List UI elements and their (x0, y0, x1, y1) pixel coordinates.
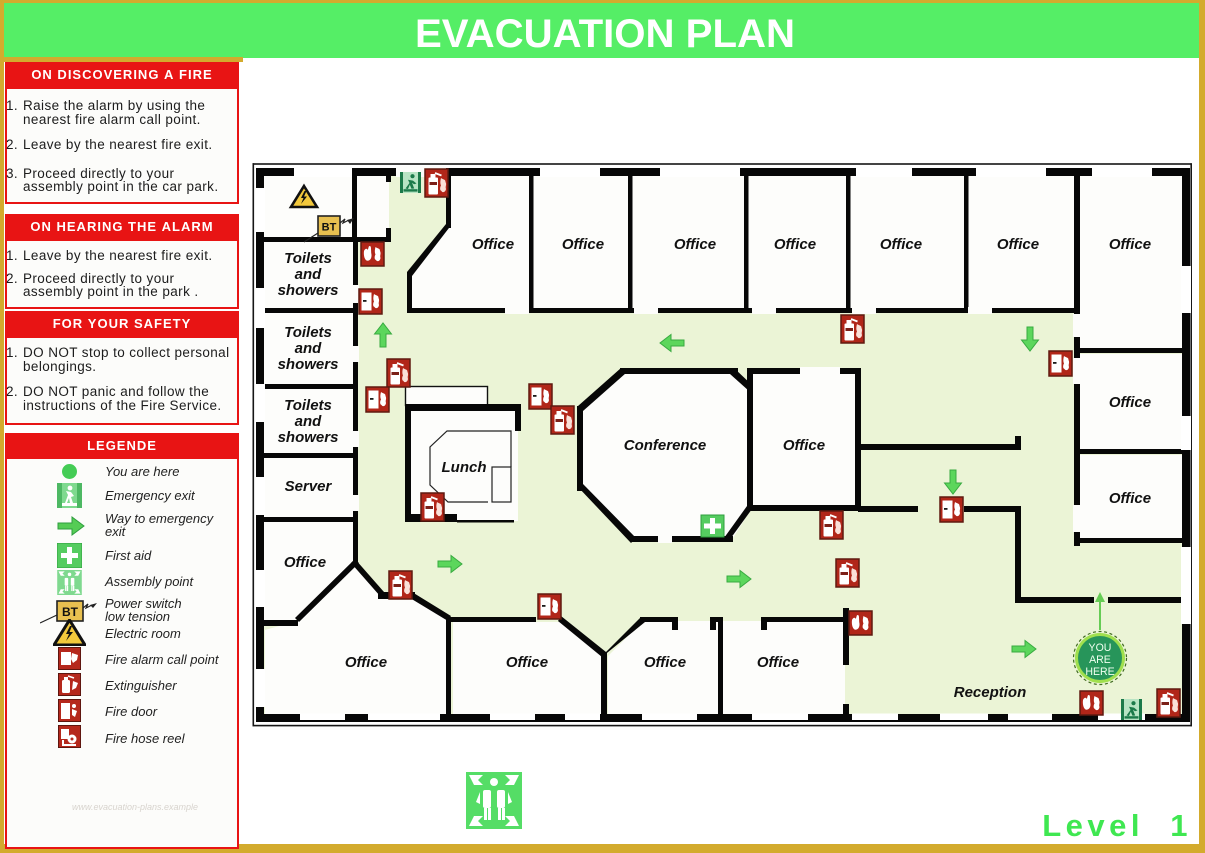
svg-text:Office: Office (774, 236, 816, 253)
svg-text:Toilets: Toilets (284, 397, 332, 414)
svg-text:Office: Office (1109, 236, 1151, 253)
svg-text:and: and (295, 413, 323, 430)
svg-text:Toilets: Toilets (284, 324, 332, 341)
svg-text:ARE: ARE (1089, 654, 1111, 666)
svg-text:Office: Office (1109, 490, 1151, 507)
svg-text:Office: Office (674, 236, 716, 253)
svg-text:Office: Office (1109, 394, 1151, 411)
svg-text:BT: BT (322, 222, 337, 234)
svg-text:Office: Office (345, 654, 387, 671)
svg-text:Office: Office (757, 654, 799, 671)
svg-text:Office: Office (880, 236, 922, 253)
svg-text:Conference: Conference (624, 437, 707, 454)
svg-text:showers: showers (278, 429, 339, 446)
svg-text:Office: Office (284, 554, 326, 571)
svg-text:and: and (295, 266, 323, 283)
svg-text:Office: Office (562, 236, 604, 253)
svg-text:Office: Office (506, 654, 548, 671)
svg-text:Server: Server (285, 478, 333, 495)
svg-text:HERE: HERE (1085, 666, 1114, 678)
svg-text:Office: Office (472, 236, 514, 253)
svg-text:Office: Office (997, 236, 1039, 253)
svg-text:Reception: Reception (954, 684, 1027, 701)
svg-text:BT: BT (62, 605, 79, 619)
svg-text:Office: Office (783, 437, 825, 454)
svg-text:Toilets: Toilets (284, 250, 332, 267)
svg-text:showers: showers (278, 282, 339, 299)
svg-text:YOU: YOU (1089, 642, 1112, 654)
svg-text:showers: showers (278, 356, 339, 373)
svg-text:EVACUATION PLAN: EVACUATION PLAN (415, 12, 795, 56)
svg-text:Lunch: Lunch (442, 459, 487, 476)
svg-text:and: and (295, 340, 323, 357)
svg-text:Office: Office (644, 654, 686, 671)
